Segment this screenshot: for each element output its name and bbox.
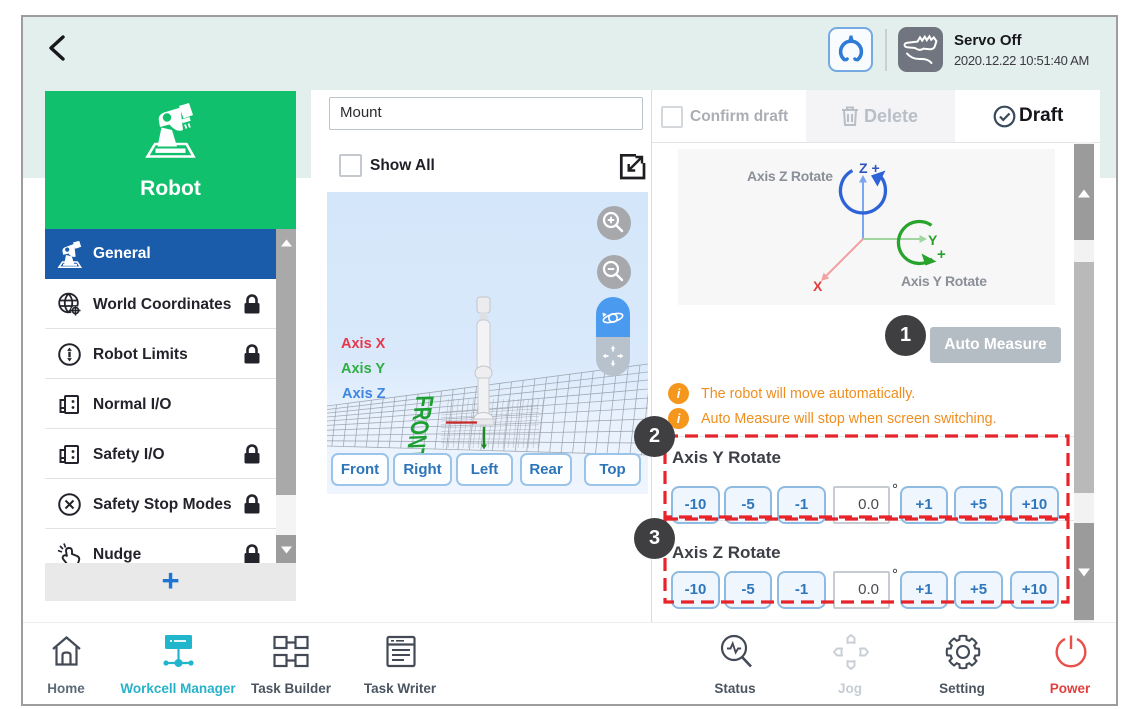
svg-text:X: X <box>813 278 823 294</box>
svg-text:Z +: Z + <box>859 160 880 176</box>
svg-text:Axis Y Rotate: Axis Y Rotate <box>901 273 987 289</box>
svg-text:Axis Z Rotate: Axis Z Rotate <box>747 168 833 184</box>
svg-text:+: + <box>937 246 946 263</box>
